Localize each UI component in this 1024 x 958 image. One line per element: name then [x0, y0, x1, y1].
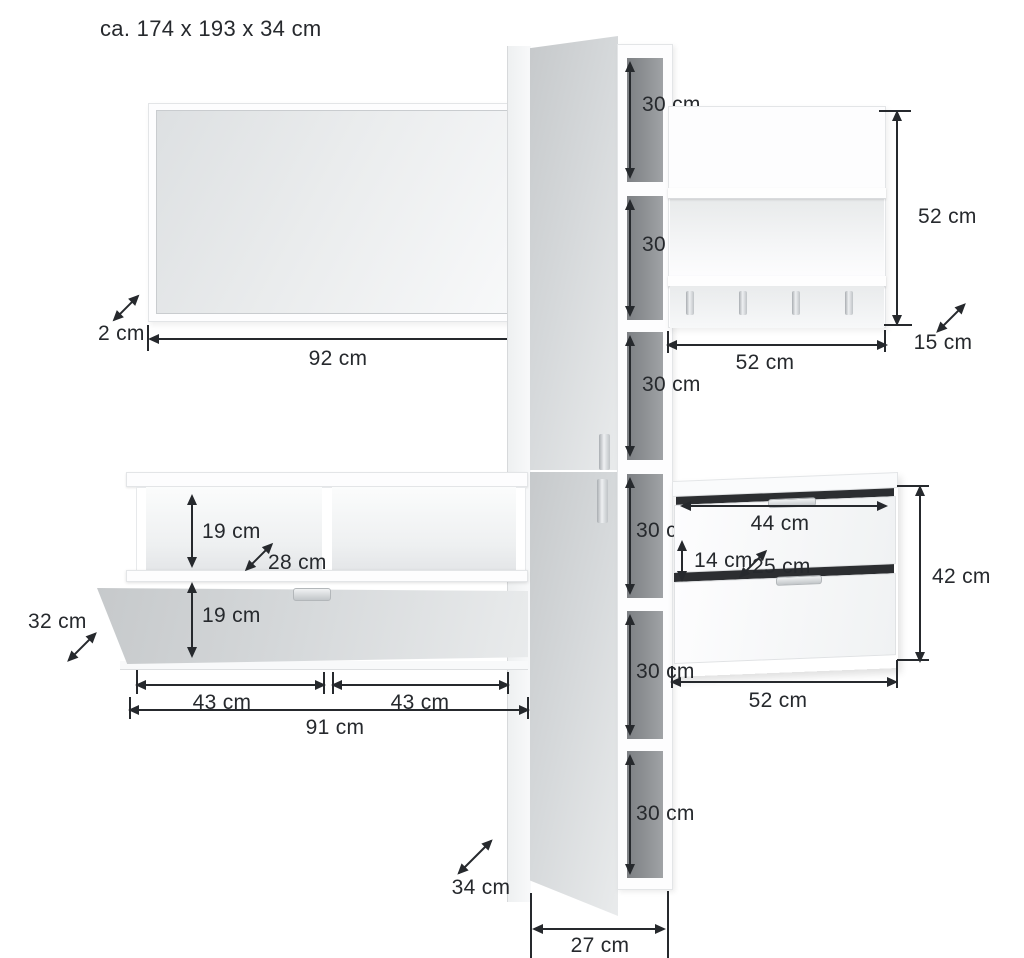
compartment-height-arrow: [629, 337, 631, 455]
bench-depth28-label: 28 cm: [268, 551, 327, 575]
mirror-glass: [156, 110, 518, 314]
cabinet-upper-door-handle: [599, 434, 610, 470]
compartment-height-label: 30 cm: [636, 802, 695, 826]
drawer-depth-label: 25 cm: [752, 555, 811, 579]
mirror-depth-label: 2 cm: [98, 322, 145, 346]
bench-total-width-label: 91 cm: [255, 716, 415, 740]
drawer-height-line: [919, 487, 921, 661]
mirror-depth-arrow: [113, 295, 138, 320]
compartment-height-arrow: [629, 63, 631, 177]
drawer-width-label: 52 cm: [703, 689, 853, 713]
drawer-front-lower: [674, 573, 896, 664]
coat-rack-recess: [670, 196, 884, 278]
mirror-width-label: 92 cm: [268, 347, 408, 371]
bench-left-width-line: [137, 684, 324, 686]
bench-shelf-board: [126, 570, 528, 582]
column-width-line: [534, 928, 664, 930]
coat-rack-depth-label: 15 cm: [898, 331, 988, 355]
coat-hook: [739, 291, 747, 315]
coat-hook: [845, 291, 853, 315]
bench-right-width-line: [333, 684, 508, 686]
shelf-compartment: [627, 58, 663, 182]
cabinet-lower-door: [530, 472, 618, 916]
furniture-dimension-diagram: ca. 174 x 193 x 34 cm 2 cm 92 cm 30 cm: [0, 0, 1024, 958]
compartment-height-arrow: [629, 616, 631, 734]
bench-compartment-right: [332, 487, 516, 570]
coat-rack-height-label: 52 cm: [918, 205, 977, 229]
column-depth-arrow: [458, 840, 492, 874]
bench-upper-height-label: 19 cm: [202, 520, 261, 544]
cabinet-lower-door-handle: [597, 479, 608, 523]
bench-depth-label: 32 cm: [28, 610, 87, 634]
bench-left-width-label: 43 cm: [142, 691, 302, 715]
coat-hook: [792, 291, 800, 315]
coat-rack-width-label: 52 cm: [700, 351, 830, 375]
drawer-inner-width-label: 44 cm: [700, 512, 860, 536]
coat-rack-shelf-upper: [668, 188, 886, 199]
mirror-width-line: [150, 338, 526, 340]
coat-rack-depth-arrow: [937, 304, 965, 332]
column-width-label: 27 cm: [545, 934, 655, 958]
bench-door-height-label: 19 cm: [202, 604, 261, 628]
bench-top-board: [126, 472, 528, 487]
page-title: ca. 174 x 193 x 34 cm: [100, 16, 322, 42]
drawer-inner-width-line: [682, 505, 886, 507]
coat-rack-height-line: [896, 112, 898, 324]
compartment-height-arrow: [629, 756, 631, 873]
cabinet-upper-door: [530, 36, 618, 470]
drawer-inner-height-line: [681, 542, 683, 580]
extension-line: [667, 891, 669, 958]
drawer-width-line: [672, 681, 896, 683]
bench-door-handle: [293, 588, 331, 601]
coat-hook: [686, 291, 694, 315]
bench-door-height-line: [191, 584, 193, 656]
compartment-height-label: 30 cm: [642, 373, 701, 397]
bench-total-width-line: [130, 709, 528, 711]
shelf-compartment: [627, 196, 663, 320]
column-depth-label: 34 cm: [436, 876, 526, 900]
coat-rack-width-line: [668, 344, 886, 346]
bench-upper-height-line: [191, 496, 193, 566]
compartment-height-arrow: [629, 201, 631, 315]
bench-right-width-label: 43 cm: [340, 691, 500, 715]
drawer-height-label: 42 cm: [932, 565, 991, 589]
bench-depth-arrow: [68, 633, 96, 661]
compartment-height-arrow: [629, 479, 631, 593]
